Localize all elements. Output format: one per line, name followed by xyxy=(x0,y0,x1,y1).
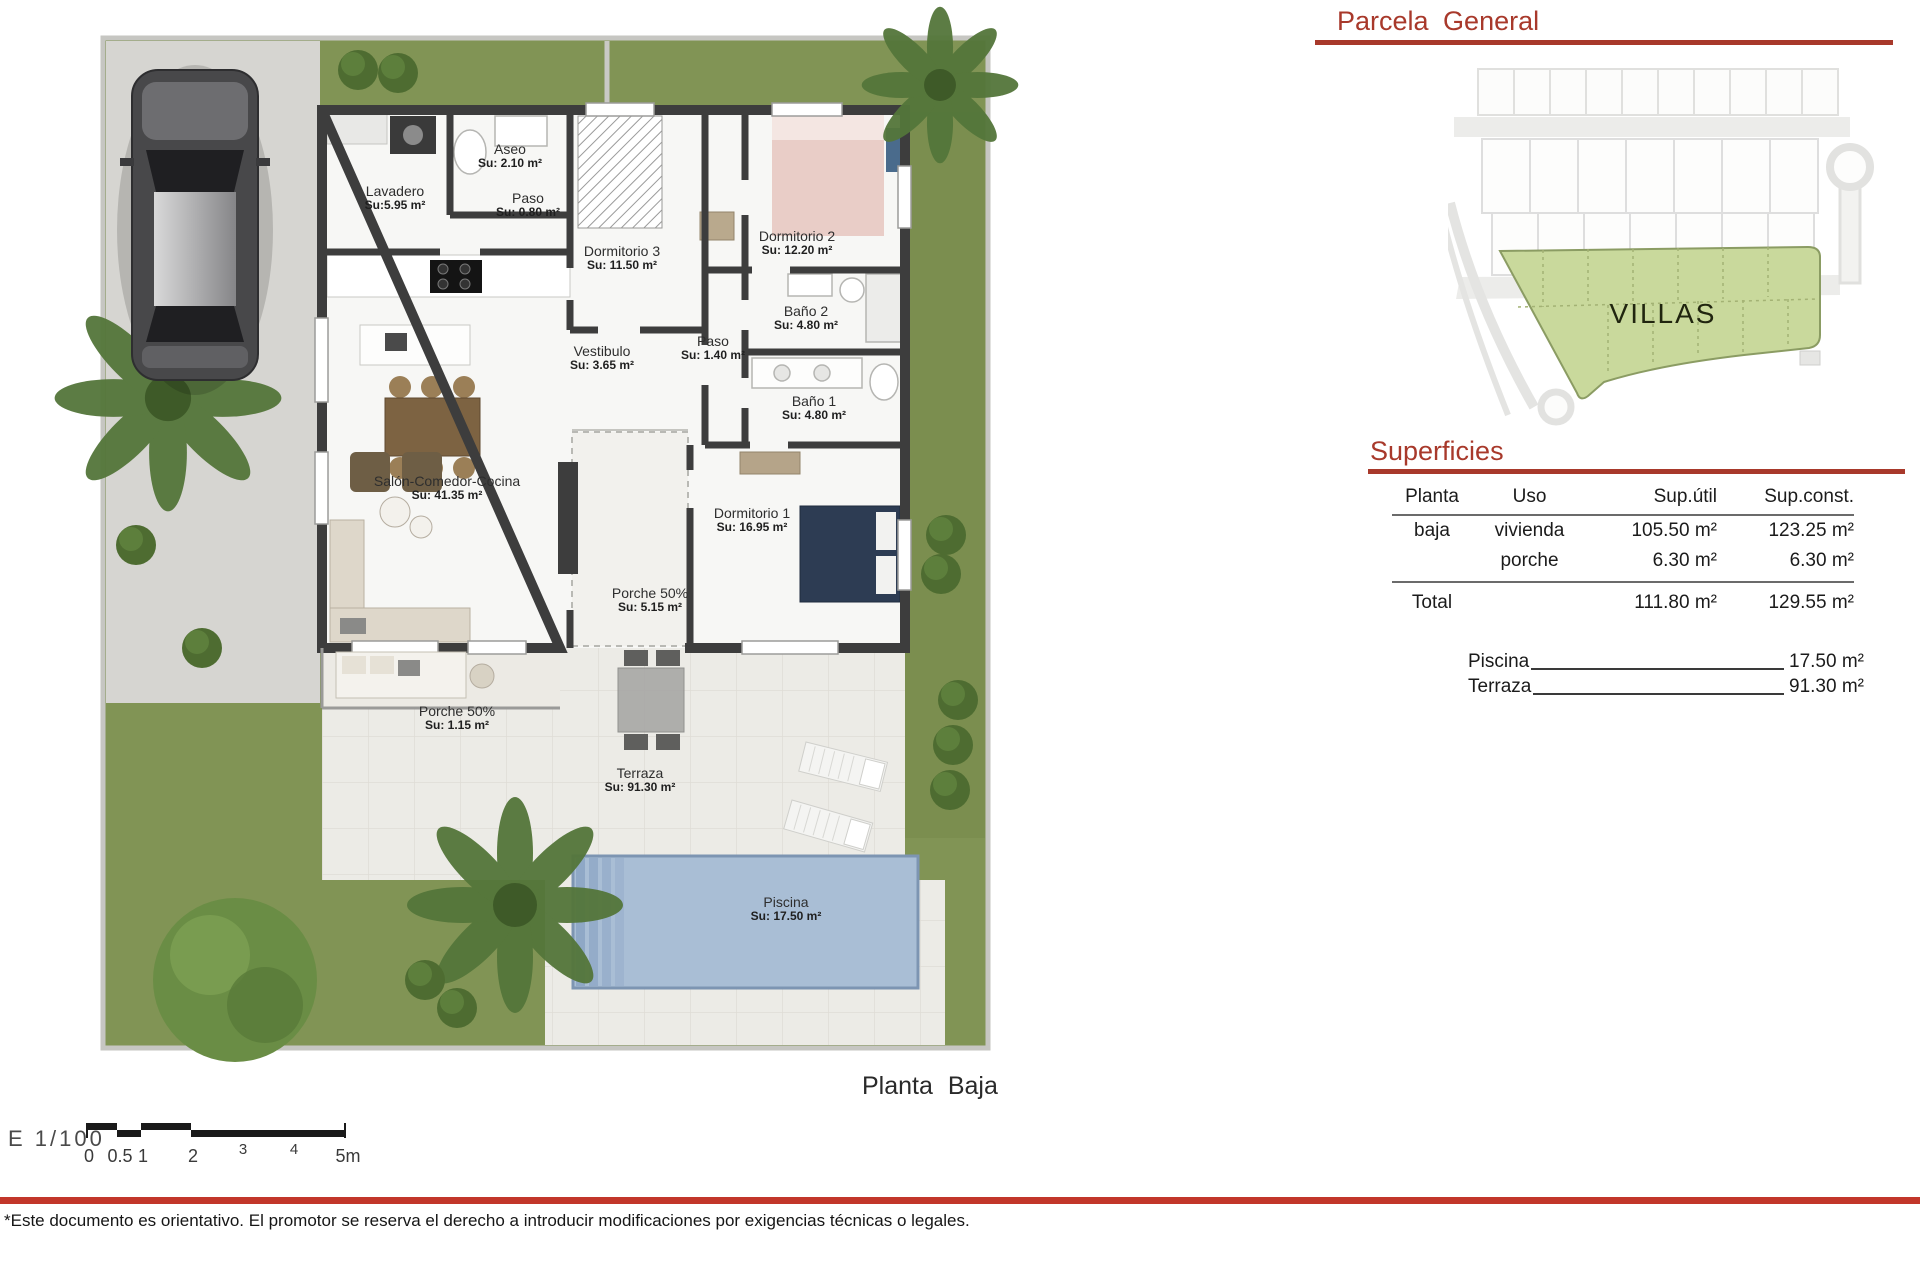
col-header-util: Sup.útil xyxy=(1587,486,1717,508)
footer-disclaimer: *Este documento es orientativo. El promo… xyxy=(4,1211,970,1231)
room-label-dormitorio-2: Dormitorio 2 Su: 12.20 m² xyxy=(759,228,835,258)
room-label-dormitorio-1: Dormitorio 1 Su: 16.95 m² xyxy=(714,505,790,535)
big-tree xyxy=(153,898,317,1062)
room-name: Vestibulo xyxy=(570,343,634,359)
room-area: Su: 0.80 m² xyxy=(496,206,560,220)
room-name: Salón-Comedor-Cocina xyxy=(374,473,520,489)
cell-planta: baja xyxy=(1392,520,1472,542)
room-name: Baño 2 xyxy=(774,303,838,319)
superficies-title-rule xyxy=(1368,469,1905,474)
room-area: Su: 1.15 m² xyxy=(419,719,495,733)
cell-planta xyxy=(1392,550,1472,572)
table-total-row: Total 111.80 m² 129.55 m² xyxy=(1392,583,1854,618)
extra-label: Piscina xyxy=(1468,651,1529,673)
extra-row-terraza: Terraza 91.30 m² xyxy=(1468,673,1864,698)
extra-value: 17.50 m² xyxy=(1786,651,1864,673)
room-label-aseo: Aseo Su: 2.10 m² xyxy=(478,141,542,171)
room-area: Su: 3.65 m² xyxy=(570,359,634,373)
scale-tick: 0 xyxy=(84,1146,94,1167)
scale-bar xyxy=(86,1120,352,1142)
room-area: Su: 91.30 m² xyxy=(605,781,676,795)
room-label-dormitorio-3: Dormitorio 3 Su: 11.50 m² xyxy=(584,243,660,273)
room-area: Su: 1.40 m² xyxy=(681,349,745,363)
total-uso-empty xyxy=(1472,592,1587,614)
superficies-table: Planta Uso Sup.útil Sup.const. baja vivi… xyxy=(1392,482,1854,618)
room-name: Aseo xyxy=(478,141,542,157)
room-label-lavadero: Lavadero Su:5.95 m² xyxy=(365,183,426,213)
leader-line xyxy=(1531,668,1784,670)
bed-dormitorio-3 xyxy=(578,116,662,228)
scale-tick: 4 xyxy=(290,1141,298,1158)
table-row: baja vivienda 105.50 m² 123.25 m² xyxy=(1392,516,1854,546)
parcela-general-title: Parcela General xyxy=(1337,6,1539,37)
room-name: Lavadero xyxy=(365,183,426,199)
room-name: Porche 50% xyxy=(612,585,688,601)
plan-title: Planta Baja xyxy=(862,1072,998,1101)
col-header-uso: Uso xyxy=(1472,486,1587,508)
room-name: Terraza xyxy=(605,765,676,781)
room-area: Su: 16.95 m² xyxy=(714,521,790,535)
cell-uso: porche xyxy=(1472,550,1587,572)
room-area: Su: 5.15 m² xyxy=(612,601,688,615)
room-area: Su: 12.20 m² xyxy=(759,244,835,258)
room-name: Paso xyxy=(496,190,560,206)
room-area: Su: 4.80 m² xyxy=(774,319,838,333)
room-label-bano-1: Baño 1 Su: 4.80 m² xyxy=(782,393,846,423)
room-name: Dormitorio 3 xyxy=(584,243,660,259)
siteplan-drawing: VILLAS xyxy=(1448,55,1918,445)
scale-tick: 0.5 xyxy=(107,1146,132,1167)
room-label-bano-2: Baño 2 Su: 4.80 m² xyxy=(774,303,838,333)
room-name: Dormitorio 1 xyxy=(714,505,790,521)
parcela-title-rule xyxy=(1315,40,1893,45)
room-area: Su: 2.10 m² xyxy=(478,157,542,171)
extra-label: Terraza xyxy=(1468,676,1531,698)
extra-row-piscina: Piscina 17.50 m² xyxy=(1468,648,1864,673)
total-label: Total xyxy=(1392,592,1472,614)
room-label-porche-115: Porche 50% Su: 1.15 m² xyxy=(419,703,495,733)
room-label-piscina: Piscina Su: 17.50 m² xyxy=(751,894,822,924)
table-row: porche 6.30 m² 6.30 m² xyxy=(1392,546,1854,583)
room-area: Su: 4.80 m² xyxy=(782,409,846,423)
room-name: Paso xyxy=(681,333,745,349)
media-wall xyxy=(558,462,578,574)
room-label-vestibulo: Vestibulo Su: 3.65 m² xyxy=(570,343,634,373)
villas-label: VILLAS xyxy=(1610,298,1717,329)
pool xyxy=(573,856,918,988)
col-header-planta: Planta xyxy=(1392,486,1472,508)
col-header-const: Sup.const. xyxy=(1717,486,1854,508)
room-name: Baño 1 xyxy=(782,393,846,409)
floorplan-drawing xyxy=(0,0,1080,1160)
room-area: Su: 17.50 m² xyxy=(751,910,822,924)
scale-tick: 2 xyxy=(188,1146,198,1167)
car xyxy=(117,65,273,395)
footer-rule xyxy=(0,1197,1920,1204)
superficies-title: Superficies xyxy=(1370,436,1504,467)
scale-tick: 1 xyxy=(138,1146,148,1167)
cell-const: 123.25 m² xyxy=(1717,520,1854,542)
room-name: Porche 50% xyxy=(419,703,495,719)
total-const: 129.55 m² xyxy=(1717,592,1854,614)
room-area: Su: 41.35 m² xyxy=(374,489,520,503)
cell-util: 6.30 m² xyxy=(1587,550,1717,572)
cell-const: 6.30 m² xyxy=(1717,550,1854,572)
room-label-terraza: Terraza Su: 91.30 m² xyxy=(605,765,676,795)
room-label-salon: Salón-Comedor-Cocina Su: 41.35 m² xyxy=(374,473,520,503)
extra-value: 91.30 m² xyxy=(1786,676,1864,698)
room-name: Dormitorio 2 xyxy=(759,228,835,244)
extras-list: Piscina 17.50 m² Terraza 91.30 m² xyxy=(1468,648,1864,698)
room-label-paso-1: Paso Su: 0.80 m² xyxy=(496,190,560,220)
scale-tick: 5m xyxy=(335,1146,360,1167)
cell-util: 105.50 m² xyxy=(1587,520,1717,542)
room-label-paso-2: Paso Su: 1.40 m² xyxy=(681,333,745,363)
total-util: 111.80 m² xyxy=(1587,592,1717,614)
room-label-porche-515: Porche 50% Su: 5.15 m² xyxy=(612,585,688,615)
room-name: Piscina xyxy=(751,894,822,910)
scale-tick: 3 xyxy=(239,1141,247,1158)
cell-uso: vivienda xyxy=(1472,520,1587,542)
room-area: Su: 11.50 m² xyxy=(584,259,660,273)
room-area: Su:5.95 m² xyxy=(365,199,426,213)
table-header-row: Planta Uso Sup.útil Sup.const. xyxy=(1392,482,1854,516)
bed-dormitorio-2 xyxy=(772,114,902,236)
page: Aseo Su: 2.10 m² Lavadero Su:5.95 m² Pas… xyxy=(0,0,1920,1280)
leader-line xyxy=(1533,693,1784,695)
